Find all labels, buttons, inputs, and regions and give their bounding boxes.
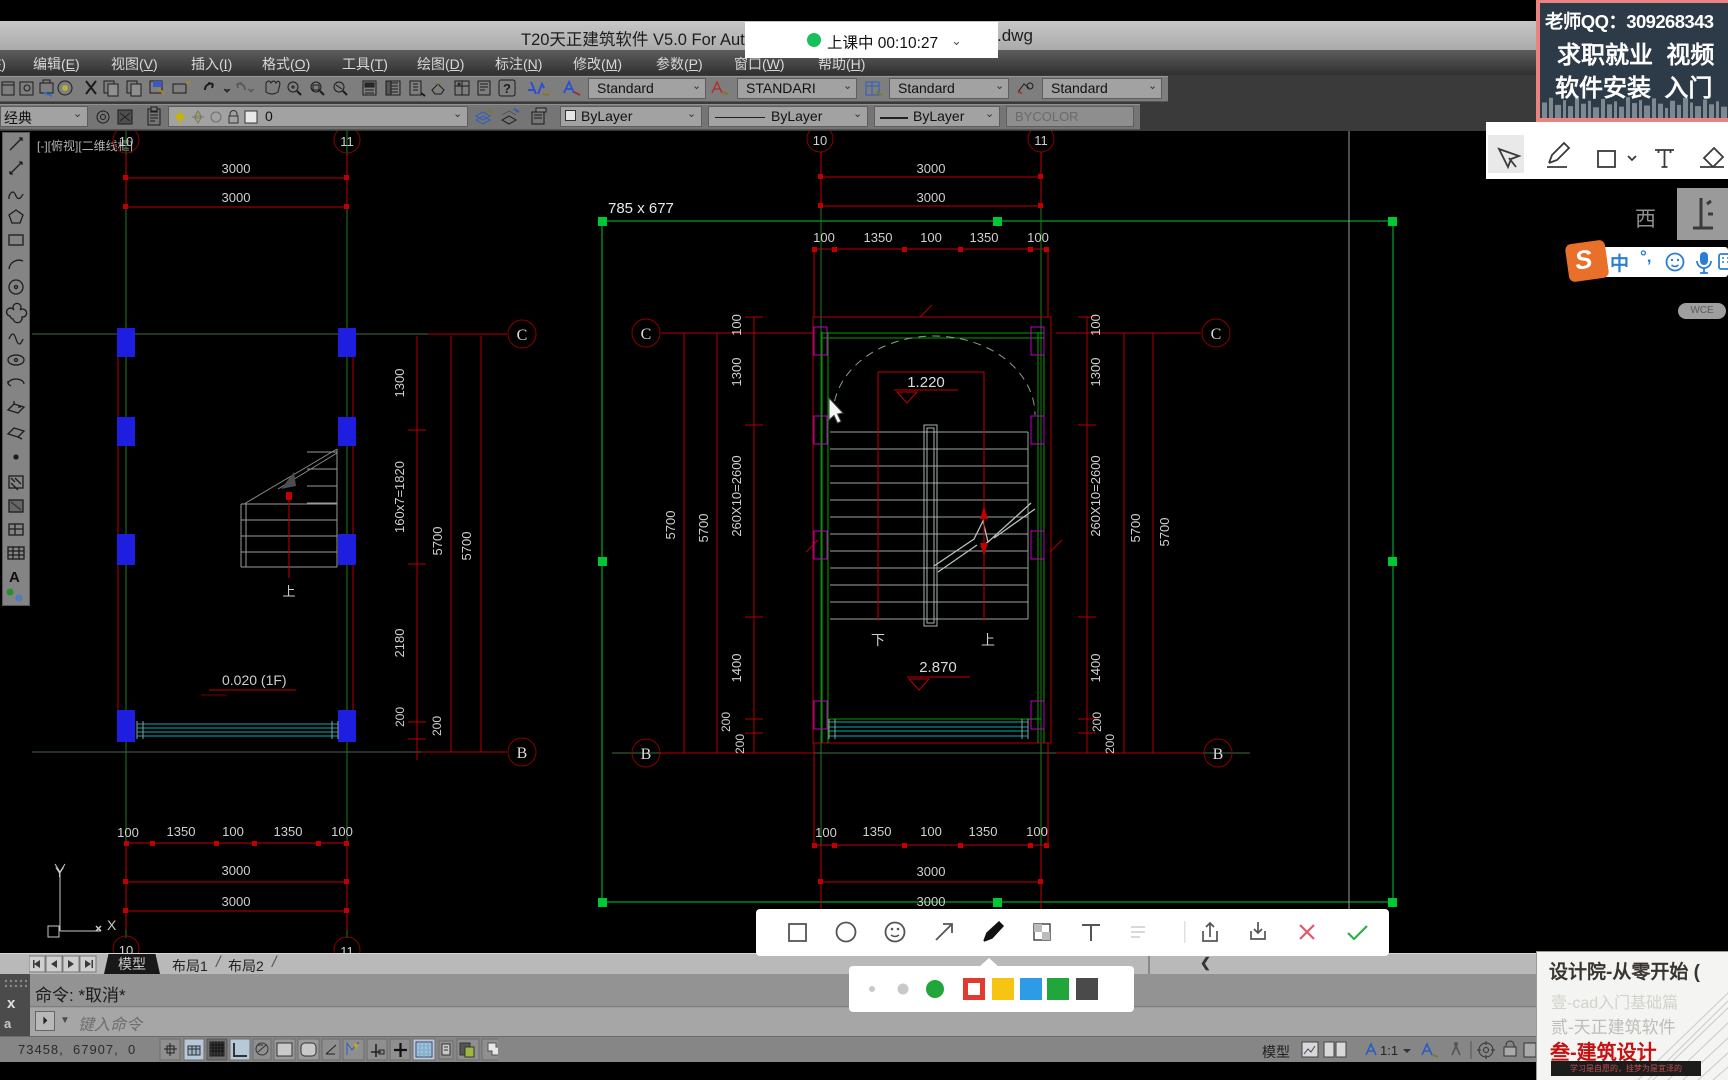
svg-text:3000: 3000	[917, 894, 946, 909]
svg-text:1350: 1350	[167, 824, 196, 839]
svg-text:3000: 3000	[917, 190, 946, 205]
svg-text:B: B	[1213, 746, 1224, 763]
svg-text:Y: Y	[55, 864, 65, 880]
svg-text:2180: 2180	[392, 629, 407, 658]
svg-text:3000: 3000	[222, 894, 251, 909]
svg-text:1:1: 1:1	[1380, 1043, 1398, 1058]
svg-text:C: C	[641, 326, 652, 343]
svg-text:100: 100	[1026, 824, 1048, 839]
svg-text:5700: 5700	[430, 527, 445, 556]
svg-text:1300: 1300	[729, 358, 744, 387]
svg-text:200: 200	[733, 734, 747, 754]
svg-text:1400: 1400	[1088, 654, 1103, 683]
svg-text:C: C	[517, 327, 528, 344]
svg-text:3000: 3000	[222, 190, 251, 205]
svg-text:3000: 3000	[222, 161, 251, 176]
svg-text:200: 200	[393, 707, 407, 727]
svg-text:1350: 1350	[274, 824, 303, 839]
svg-text:1350: 1350	[864, 230, 893, 245]
svg-text:100: 100	[920, 230, 942, 245]
svg-text:200: 200	[430, 716, 444, 736]
svg-text:3000: 3000	[222, 863, 251, 878]
svg-text:3000: 3000	[917, 864, 946, 879]
svg-text:100: 100	[813, 230, 835, 245]
svg-text:100: 100	[1027, 230, 1049, 245]
svg-text:B: B	[641, 746, 652, 763]
svg-text:100: 100	[920, 824, 942, 839]
svg-text:10: 10	[813, 133, 827, 148]
svg-text:1350: 1350	[970, 230, 999, 245]
svg-text:下: 下	[871, 632, 885, 648]
svg-text:260X10=2600: 260X10=2600	[1088, 455, 1103, 536]
svg-text:1300: 1300	[392, 369, 407, 398]
svg-text:100: 100	[117, 825, 139, 840]
svg-text:11: 11	[1034, 133, 1048, 148]
svg-text:100: 100	[1088, 314, 1103, 336]
svg-text:100: 100	[815, 825, 837, 840]
svg-text:5700: 5700	[663, 511, 678, 540]
svg-text:上: 上	[282, 584, 295, 599]
svg-text:1300: 1300	[1088, 358, 1103, 387]
svg-text:5700: 5700	[696, 514, 711, 543]
svg-text:100: 100	[222, 824, 244, 839]
svg-text:1350: 1350	[969, 824, 998, 839]
svg-text:5700: 5700	[459, 532, 474, 561]
svg-text:X: X	[107, 917, 117, 933]
svg-text:785 x 677: 785 x 677	[608, 200, 674, 217]
svg-text:1.220: 1.220	[907, 374, 945, 391]
svg-text:200: 200	[719, 712, 733, 732]
svg-text:B: B	[517, 745, 528, 762]
svg-text:10: 10	[119, 134, 133, 149]
svg-text:200: 200	[1103, 734, 1117, 754]
svg-text:5700: 5700	[1157, 518, 1172, 547]
svg-text:100: 100	[331, 824, 353, 839]
svg-text:C: C	[1211, 326, 1222, 343]
svg-text:1350: 1350	[863, 824, 892, 839]
svg-text:200: 200	[1090, 712, 1104, 732]
svg-text:5700: 5700	[1128, 514, 1143, 543]
svg-text:100: 100	[729, 314, 744, 336]
svg-text:0.020 (1F): 0.020 (1F)	[222, 672, 287, 688]
svg-text:上: 上	[981, 632, 995, 648]
svg-text:160x7=1820: 160x7=1820	[392, 461, 407, 533]
svg-text:2.870: 2.870	[919, 659, 957, 676]
svg-text:1400: 1400	[729, 654, 744, 683]
svg-text:3000: 3000	[917, 161, 946, 176]
svg-text:11: 11	[340, 134, 354, 149]
svg-text:260X10=2600: 260X10=2600	[729, 455, 744, 536]
